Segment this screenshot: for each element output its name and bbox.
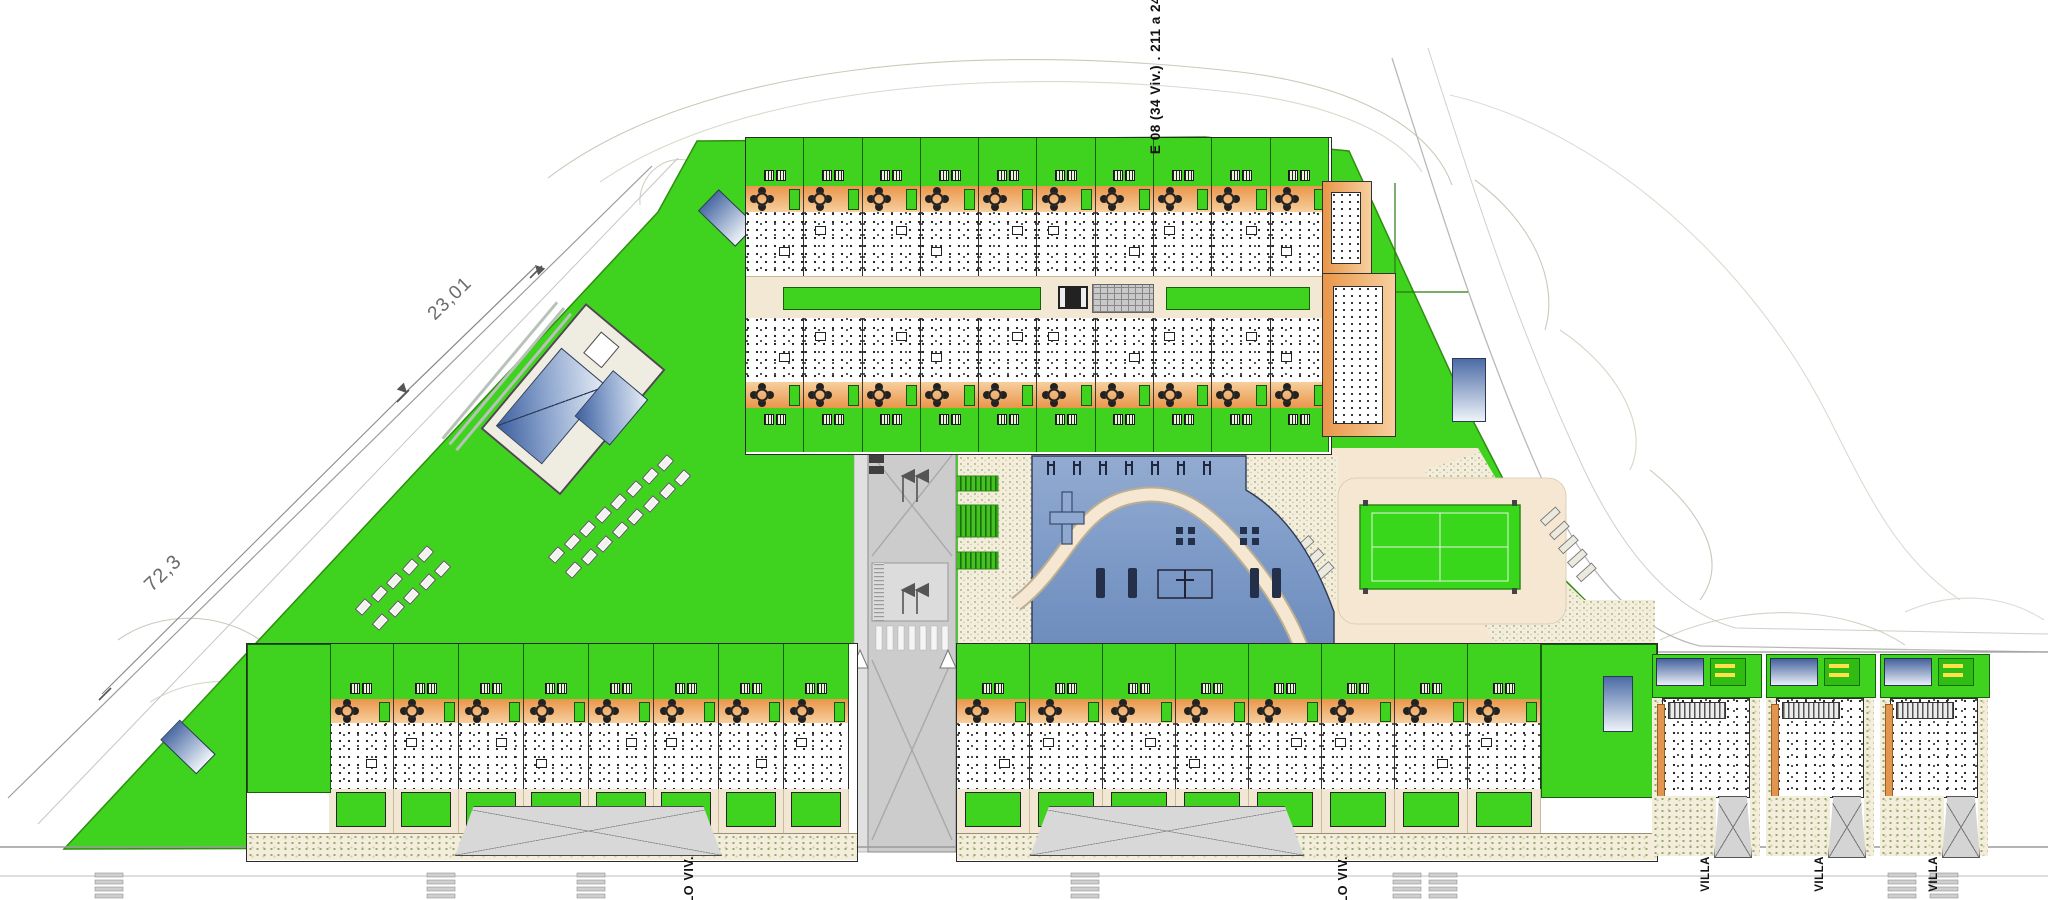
bottom-garden-cell bbox=[1176, 644, 1249, 699]
bottom-block-label-line2: VIV. bbox=[1336, 856, 1350, 880]
bottom-unit-plan-cell bbox=[1468, 723, 1541, 789]
planter bbox=[769, 702, 780, 722]
top-unit-plan-cell bbox=[1096, 212, 1154, 276]
villa-front-yard bbox=[1880, 796, 1944, 856]
terrace-table-icon bbox=[795, 705, 808, 718]
planter bbox=[1307, 702, 1318, 722]
top-unit-plan-south-cell bbox=[863, 318, 921, 382]
bottom-unit-plan-cell bbox=[589, 723, 654, 789]
top-unit-plan-cell bbox=[1271, 212, 1329, 276]
planter bbox=[1197, 189, 1208, 210]
bottom-garden-cell bbox=[329, 644, 394, 699]
bottom-terrace-cell bbox=[1395, 699, 1468, 723]
top-unit-plan-south-cell bbox=[746, 318, 804, 382]
villa-driveway bbox=[1714, 796, 1752, 858]
furniture-block bbox=[1189, 759, 1200, 768]
walkway-green-strip bbox=[1166, 287, 1310, 310]
bottom-patio-cell bbox=[1395, 789, 1468, 833]
central-walkway bbox=[746, 276, 1329, 320]
top-unit-plan-cell bbox=[1154, 212, 1212, 276]
top-terrace-south-cell bbox=[979, 382, 1037, 408]
garden-table-icon bbox=[1274, 683, 1296, 694]
furniture-block bbox=[1246, 332, 1257, 341]
villa-label: VILLA bbox=[1928, 856, 1940, 892]
bottom-unit-plan-cell bbox=[329, 723, 394, 789]
planter bbox=[1022, 189, 1033, 210]
terrace-table-icon bbox=[730, 705, 743, 718]
central-road bbox=[852, 444, 956, 852]
planter bbox=[906, 189, 917, 210]
bottom-terrace-cell bbox=[1176, 699, 1249, 723]
furniture-block bbox=[999, 759, 1010, 768]
garden-table-icon bbox=[1055, 414, 1077, 425]
top-garden-south-cell bbox=[1212, 408, 1270, 452]
walkway-green-strip bbox=[783, 287, 1041, 310]
furniture-block bbox=[796, 738, 807, 747]
garden-table-icon bbox=[997, 170, 1019, 181]
bottom-terrace-cell bbox=[1030, 699, 1103, 723]
bottom-terrace-cell bbox=[654, 699, 719, 723]
furniture-block bbox=[1048, 226, 1059, 235]
top-unit-plan-cell bbox=[804, 212, 862, 276]
villa-driveway bbox=[1942, 796, 1980, 858]
terrace-table-icon bbox=[470, 705, 483, 718]
garden-table-icon bbox=[1288, 414, 1310, 425]
planter bbox=[704, 702, 715, 722]
block-08-label-line2: . 211 a 244 bbox=[1148, 0, 1163, 60]
garden-table-icon bbox=[880, 170, 902, 181]
furniture-block bbox=[1043, 738, 1054, 747]
top-unit-plan-cell bbox=[1212, 212, 1270, 276]
villa-label-text: VILLA bbox=[1700, 856, 1712, 892]
planter bbox=[964, 189, 975, 210]
top-garden bbox=[746, 138, 1329, 186]
villa-plaque bbox=[1824, 658, 1860, 686]
top-terrace-cell bbox=[863, 186, 921, 212]
garden-pool bbox=[1452, 358, 1486, 422]
garden-table-icon bbox=[822, 170, 844, 181]
garden-table-icon bbox=[1420, 683, 1442, 694]
furniture-block bbox=[626, 738, 637, 747]
planter bbox=[1256, 189, 1267, 210]
villa bbox=[1766, 646, 1874, 856]
end-yard bbox=[247, 644, 331, 793]
bottom-unit-plan-cell bbox=[719, 723, 784, 789]
terrace-table-icon bbox=[1263, 705, 1276, 718]
furniture-block bbox=[1164, 226, 1175, 235]
top-terrace-cell bbox=[1037, 186, 1095, 212]
bottom-terrace-cell bbox=[589, 699, 654, 723]
top-unit-plan-south-cell bbox=[1037, 318, 1095, 382]
top-garden-cell bbox=[1096, 138, 1154, 186]
walkway-dark-boxes bbox=[1058, 286, 1088, 309]
planter bbox=[379, 702, 390, 722]
furniture-block bbox=[1129, 247, 1140, 256]
top-garden-south-cell bbox=[1154, 408, 1212, 452]
terrace-table-icon bbox=[1222, 389, 1235, 402]
site-plan: 23,01 72,3 . 211 a 244 E 08 (34 Viv.) VI… bbox=[0, 0, 2048, 900]
top-terrace-south-cell bbox=[863, 382, 921, 408]
villa-front-yard bbox=[1652, 796, 1716, 856]
bottom-block-label: VIV. BLO bbox=[682, 856, 696, 900]
garden-table-icon bbox=[939, 170, 961, 181]
top-unit-plan-south-cell bbox=[979, 318, 1037, 382]
garden-table-icon bbox=[545, 683, 567, 694]
bottom-garden-cell bbox=[957, 644, 1030, 699]
garden-table-icon bbox=[1055, 683, 1077, 694]
bottom-unit-plan-cell bbox=[1030, 723, 1103, 789]
planter bbox=[1139, 189, 1150, 210]
furniture-block bbox=[1335, 738, 1346, 747]
top-terrace-south-cell bbox=[1154, 382, 1212, 408]
bottom-patio-cell bbox=[394, 789, 459, 833]
bottom-garden-cell bbox=[1322, 644, 1395, 699]
terrace-table-icon bbox=[989, 193, 1002, 206]
top-terrace-south-cell bbox=[1271, 382, 1329, 408]
top-unit-plan-south bbox=[746, 318, 1329, 382]
bottom-garden-cell bbox=[1030, 644, 1103, 699]
terrace-table-icon bbox=[1164, 193, 1177, 206]
terrace-table-icon bbox=[535, 705, 548, 718]
bottom-garden-cell bbox=[1103, 644, 1176, 699]
villa-plaque bbox=[1938, 658, 1974, 686]
villa-side-walk bbox=[1864, 698, 1874, 856]
patio-lawn bbox=[336, 792, 387, 827]
furniture-block bbox=[896, 226, 907, 235]
garden-table-icon bbox=[764, 414, 786, 425]
planter bbox=[789, 385, 800, 406]
top-unit-plan-south-cell bbox=[1096, 318, 1154, 382]
top-terrace-cell bbox=[921, 186, 979, 212]
top-terrace-south-cell bbox=[746, 382, 804, 408]
east-cap-plan bbox=[1331, 192, 1361, 264]
furniture-block bbox=[779, 353, 790, 362]
apartment-block-top-east-cap bbox=[1322, 181, 1372, 275]
bottom-terrace bbox=[957, 699, 1541, 723]
garden-table-icon bbox=[415, 683, 437, 694]
villa-side-walk bbox=[1750, 698, 1760, 856]
top-terrace-cell bbox=[804, 186, 862, 212]
furniture-block bbox=[931, 247, 942, 256]
terrace-table-icon bbox=[1117, 705, 1130, 718]
planter bbox=[1380, 702, 1391, 722]
patio-lawn bbox=[1476, 792, 1533, 827]
terrace-table-icon bbox=[756, 193, 769, 206]
furniture-block bbox=[756, 759, 767, 768]
garden-table-icon bbox=[480, 683, 502, 694]
garage-ramp bbox=[455, 806, 722, 856]
top-garden-cell bbox=[746, 138, 804, 186]
top-unit-plan-south-cell bbox=[921, 318, 979, 382]
furniture-block bbox=[1481, 738, 1492, 747]
bottom-terrace-cell bbox=[957, 699, 1030, 723]
planter bbox=[1015, 702, 1026, 722]
apartment-block-top-east-cap bbox=[1322, 273, 1396, 437]
garden-table-icon bbox=[350, 683, 372, 694]
bottom-patio-cell bbox=[957, 789, 1030, 833]
terrace-table-icon bbox=[930, 389, 943, 402]
furniture-block bbox=[1012, 226, 1023, 235]
sports-court bbox=[1338, 478, 1566, 624]
patio-lawn bbox=[726, 792, 777, 827]
top-garden-south-cell bbox=[979, 408, 1037, 452]
garden-table-icon bbox=[764, 170, 786, 181]
top-terrace-south bbox=[746, 382, 1329, 408]
villa-plaque bbox=[1710, 658, 1746, 686]
villa-pool bbox=[1770, 658, 1818, 686]
villa-front-yard bbox=[1766, 796, 1830, 856]
garden-table-icon bbox=[805, 683, 827, 694]
garden-table-icon bbox=[675, 683, 697, 694]
terrace-table-icon bbox=[1190, 705, 1203, 718]
bottom-unit-plan bbox=[957, 723, 1541, 789]
bottom-garden-cell bbox=[1249, 644, 1322, 699]
terrace-table-icon bbox=[1047, 193, 1060, 206]
bottom-block-label-line1: BLO bbox=[682, 885, 696, 900]
garden-table-icon bbox=[1113, 170, 1135, 181]
end-yard bbox=[1541, 644, 1657, 798]
villa-roof-strip bbox=[1896, 702, 1954, 719]
garden-table-icon bbox=[1347, 683, 1369, 694]
block-08-label: . 211 a 244 E 08 (34 Viv.) bbox=[1148, 0, 1163, 154]
planter bbox=[1453, 702, 1464, 722]
terrace-table-icon bbox=[1164, 389, 1177, 402]
planter bbox=[1526, 702, 1537, 722]
furniture-block bbox=[366, 759, 377, 768]
patio-lawn bbox=[401, 792, 452, 827]
block-08-label-line1: E 08 (34 Viv.) bbox=[1148, 65, 1163, 154]
garden-table-icon bbox=[1172, 414, 1194, 425]
top-garden-cell bbox=[804, 138, 862, 186]
patio-lawn bbox=[791, 792, 842, 827]
planter bbox=[848, 385, 859, 406]
top-terrace-south-cell bbox=[804, 382, 862, 408]
top-unit-plan-cell bbox=[979, 212, 1037, 276]
bottom-unit-plan-cell bbox=[957, 723, 1030, 789]
furniture-block bbox=[815, 226, 826, 235]
top-terrace-cell bbox=[1271, 186, 1329, 212]
top-garden-south-cell bbox=[1096, 408, 1154, 452]
garden-table-icon bbox=[1288, 170, 1310, 181]
bottom-unit-plan-cell bbox=[784, 723, 849, 789]
terrace-table-icon bbox=[340, 705, 353, 718]
top-garden-south-cell bbox=[746, 408, 804, 452]
top-terrace-south-cell bbox=[1096, 382, 1154, 408]
planter bbox=[848, 189, 859, 210]
yard-pool bbox=[1603, 676, 1633, 732]
terrace-table-icon bbox=[814, 389, 827, 402]
garden-table-icon bbox=[1055, 170, 1077, 181]
top-garden-south-cell bbox=[1037, 408, 1095, 452]
bottom-terrace-cell bbox=[784, 699, 849, 723]
bottom-garden-cell bbox=[784, 644, 849, 699]
bottom-terrace-cell bbox=[524, 699, 589, 723]
terrace-table-icon bbox=[1044, 705, 1057, 718]
garden-table-icon bbox=[610, 683, 632, 694]
top-garden-cell bbox=[863, 138, 921, 186]
top-terrace-cell bbox=[1212, 186, 1270, 212]
top-garden-cell bbox=[1271, 138, 1329, 186]
terrace-table-icon bbox=[872, 193, 885, 206]
villa-label: VILLA bbox=[1814, 856, 1826, 892]
terrace-table-icon bbox=[1409, 705, 1422, 718]
villa-label-text: VILLA bbox=[1814, 856, 1826, 892]
bottom-unit-plan-cell bbox=[1176, 723, 1249, 789]
garden-table-icon bbox=[997, 414, 1019, 425]
bottom-garden-cell bbox=[1395, 644, 1468, 699]
garden-table-icon bbox=[1172, 170, 1194, 181]
planter bbox=[1139, 385, 1150, 406]
planter bbox=[834, 702, 845, 722]
top-terrace bbox=[746, 186, 1329, 212]
bottom-garden-cell bbox=[394, 644, 459, 699]
planter bbox=[1234, 702, 1245, 722]
planter bbox=[1081, 385, 1092, 406]
terrace-table-icon bbox=[1280, 193, 1293, 206]
furniture-block bbox=[496, 738, 507, 747]
furniture-block bbox=[536, 759, 547, 768]
villa-roof-strip bbox=[1668, 702, 1726, 719]
terrace-table-icon bbox=[1482, 705, 1495, 718]
planter bbox=[964, 385, 975, 406]
furniture-block bbox=[1291, 738, 1302, 747]
bottom-patio-cell bbox=[784, 789, 849, 833]
bottom-unit-plan bbox=[329, 723, 849, 789]
top-garden-south-cell bbox=[804, 408, 862, 452]
bottom-garden-cell bbox=[524, 644, 589, 699]
top-terrace-cell bbox=[979, 186, 1037, 212]
bottom-terrace-cell bbox=[719, 699, 784, 723]
bottom-terrace-cell bbox=[394, 699, 459, 723]
terrace-table-icon bbox=[1336, 705, 1349, 718]
furniture-block bbox=[1129, 353, 1140, 362]
villa-pool bbox=[1884, 658, 1932, 686]
terrace-table-icon bbox=[1047, 389, 1060, 402]
garage-ramp bbox=[1030, 806, 1304, 856]
top-garden-south-cell bbox=[863, 408, 921, 452]
bottom-block-label-line2: VIV. bbox=[682, 856, 696, 880]
bottom-garden-cell bbox=[654, 644, 719, 699]
top-garden-cell bbox=[979, 138, 1037, 186]
top-garden-cell bbox=[1037, 138, 1095, 186]
villa-roof-strip bbox=[1782, 702, 1840, 719]
top-terrace-cell bbox=[746, 186, 804, 212]
top-unit-plan bbox=[746, 212, 1329, 276]
top-unit-plan-south-cell bbox=[1212, 318, 1270, 382]
furniture-block bbox=[815, 332, 826, 341]
top-terrace-cell bbox=[1154, 186, 1212, 212]
bottom-unit-plan-cell bbox=[459, 723, 524, 789]
bottom-patio-cell bbox=[1468, 789, 1541, 833]
planter bbox=[639, 702, 650, 722]
garden-table-icon bbox=[939, 414, 961, 425]
terrace-table-icon bbox=[989, 389, 1002, 402]
patio-lawn bbox=[1403, 792, 1460, 827]
top-terrace-south-cell bbox=[921, 382, 979, 408]
bottom-block-label-line1: BLO bbox=[1336, 885, 1350, 900]
patio-lawn bbox=[1330, 792, 1387, 827]
furniture-block bbox=[1281, 353, 1292, 362]
top-unit-plan-south-cell bbox=[804, 318, 862, 382]
planter bbox=[1161, 702, 1172, 722]
top-unit-plan-cell bbox=[1037, 212, 1095, 276]
bottom-terrace-cell bbox=[459, 699, 524, 723]
top-unit-plan-cell bbox=[921, 212, 979, 276]
top-terrace-south-cell bbox=[1212, 382, 1270, 408]
top-unit-plan-cell bbox=[863, 212, 921, 276]
planter bbox=[1022, 385, 1033, 406]
top-garden-south-cell bbox=[1271, 408, 1329, 452]
planter bbox=[1088, 702, 1099, 722]
furniture-block bbox=[931, 353, 942, 362]
villa bbox=[1880, 646, 1988, 856]
garden-table-icon bbox=[880, 414, 902, 425]
bottom-unit-plan-cell bbox=[394, 723, 459, 789]
terrace-table-icon bbox=[1222, 193, 1235, 206]
bottom-unit-plan-cell bbox=[654, 723, 719, 789]
furniture-block bbox=[406, 738, 417, 747]
patio-lawn bbox=[965, 792, 1022, 827]
bottom-block-label: VIV. BLO bbox=[1336, 856, 1350, 900]
garden-table-icon bbox=[1230, 170, 1252, 181]
furniture-block bbox=[1246, 226, 1257, 235]
bottom-garden-cell bbox=[589, 644, 654, 699]
terrace-table-icon bbox=[971, 705, 984, 718]
bottom-terrace-cell bbox=[329, 699, 394, 723]
villa-driveway bbox=[1828, 796, 1866, 858]
utility-boxes bbox=[1092, 284, 1154, 313]
villa-side-walk bbox=[1978, 698, 1988, 856]
garden-table-icon bbox=[740, 683, 762, 694]
furniture-block bbox=[1281, 247, 1292, 256]
villa bbox=[1652, 646, 1760, 856]
top-unit-plan-south-cell bbox=[1271, 318, 1329, 382]
bottom-patio-cell bbox=[329, 789, 394, 833]
bottom-garden bbox=[957, 644, 1541, 699]
bottom-unit-plan-cell bbox=[524, 723, 589, 789]
terrace-table-icon bbox=[665, 705, 678, 718]
planter bbox=[1081, 189, 1092, 210]
terrace-table-icon bbox=[756, 389, 769, 402]
terrace-table-icon bbox=[600, 705, 613, 718]
terrace-table-icon bbox=[1105, 193, 1118, 206]
top-garden-south bbox=[746, 408, 1329, 452]
garden-table-icon bbox=[822, 414, 844, 425]
top-unit-plan-cell bbox=[746, 212, 804, 276]
planter bbox=[509, 702, 520, 722]
garden-table-icon bbox=[1493, 683, 1515, 694]
furniture-block bbox=[1048, 332, 1059, 341]
terrace-table-icon bbox=[930, 193, 943, 206]
bottom-terrace-cell bbox=[1468, 699, 1541, 723]
terrace-table-icon bbox=[405, 705, 418, 718]
garden-table-icon bbox=[1201, 683, 1223, 694]
villa-label-text: VILLA bbox=[1928, 856, 1940, 892]
furniture-block bbox=[779, 247, 790, 256]
garden-table-icon bbox=[1113, 414, 1135, 425]
garden-table-icon bbox=[1128, 683, 1150, 694]
bottom-garden-cell bbox=[719, 644, 784, 699]
bottom-terrace-cell bbox=[1103, 699, 1176, 723]
furniture-block bbox=[1145, 738, 1156, 747]
apartment-block-top bbox=[745, 137, 1332, 455]
east-cap-plan bbox=[1333, 286, 1383, 424]
terrace-table-icon bbox=[814, 193, 827, 206]
furniture-block bbox=[1012, 332, 1023, 341]
bottom-terrace bbox=[329, 699, 849, 723]
villa-label: VILLA bbox=[1700, 856, 1712, 892]
furniture-block bbox=[1437, 759, 1448, 768]
